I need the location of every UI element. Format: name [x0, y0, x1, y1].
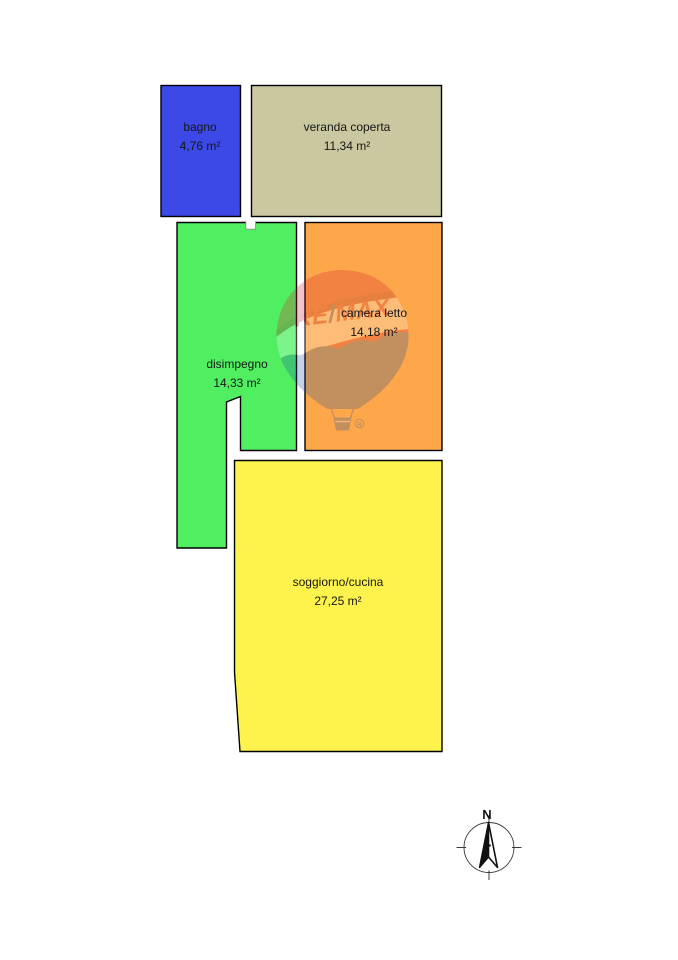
room-name: disimpegno [206, 355, 267, 374]
room-area: 14,18 m² [341, 323, 407, 342]
room-area: 14,33 m² [206, 374, 267, 393]
balloon-basket [334, 418, 352, 431]
floor-plan-canvas: RE/MAX R N bagno 4,76 m² veranda cope [0, 0, 678, 960]
svg-text:R: R [357, 422, 362, 428]
room-label-disimpegno: disimpegno 14,33 m² [206, 355, 267, 393]
room-area: 27,25 m² [293, 592, 384, 611]
room-name: camera letto [341, 304, 407, 323]
room-label-veranda-coperta: veranda coperta 11,34 m² [304, 118, 391, 156]
compass-needle [480, 823, 498, 868]
compass-north-label: N [482, 807, 491, 822]
compass-rose: N [457, 807, 522, 880]
room-area: 4,76 m² [180, 137, 221, 156]
room-label-camera-letto: camera letto 14,18 m² [341, 304, 407, 342]
room-name: soggiorno/cucina [293, 573, 384, 592]
room-label-soggiorno-cucina: soggiorno/cucina 27,25 m² [293, 573, 384, 611]
room-name: bagno [180, 118, 221, 137]
room-label-bagno: bagno 4,76 m² [180, 118, 221, 156]
door-opening [246, 221, 256, 230]
room-area: 11,34 m² [304, 137, 391, 156]
room-name: veranda coperta [304, 118, 391, 137]
